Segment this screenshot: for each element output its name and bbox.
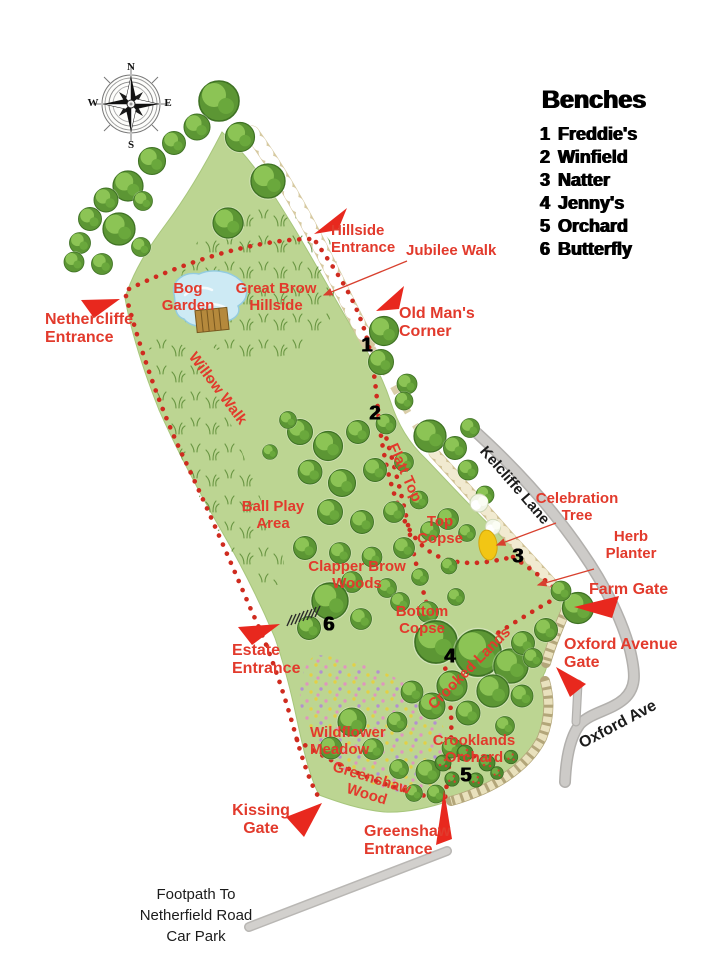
compass-east-label: E: [164, 97, 171, 109]
label-bog-garden: Bog Garden: [162, 281, 215, 315]
park-map: N E S W Hillside Entrance Jubilee Walk B…: [0, 0, 720, 960]
label-bottom-copse: Bottom Copse: [396, 604, 449, 638]
bench-marker-2: 2: [369, 403, 380, 426]
benches-legend: Benches 1Freddie's 2Winfield 3Natter 4Je…: [540, 86, 646, 262]
label-oxford-avenue-gate: Oxford Avenue Gate: [564, 636, 678, 672]
compass-rose: N E S W: [88, 61, 172, 151]
bench-marker-5: 5: [460, 765, 471, 788]
label-old-mans-corner: Old Man's Corner: [399, 305, 475, 341]
legend-item-butterfly: 6Butterfly: [540, 239, 646, 262]
legend-item-winfield: 2Winfield: [540, 147, 646, 170]
kissing-gate-flag: [286, 803, 322, 837]
label-hillside-entrance: Hillside Entrance: [331, 223, 395, 257]
label-footpath-note: Footpath To Netherfield Road Car Park: [140, 884, 253, 947]
label-greenshaw-entrance: Greenshaw Entrance: [364, 823, 450, 859]
label-farm-gate: Farm Gate: [589, 581, 668, 599]
label-wildflower-meadow: Wildflower Meadow: [310, 725, 386, 759]
footpath-road: [249, 851, 447, 927]
bench-marker-1: 1: [361, 335, 372, 358]
label-herb-planter: Herb Planter: [606, 529, 657, 563]
label-crooklands-orchard: Crooklands Orchard: [433, 733, 516, 767]
label-jubilee-walk: Jubilee Walk: [406, 243, 496, 260]
label-top-copse: Top Copse: [417, 514, 463, 548]
bench-marker-6: 6: [323, 614, 334, 637]
bench-marker-3: 3: [512, 546, 523, 569]
label-estate-entrance: Estate Entrance: [232, 642, 300, 678]
label-nethercliffe-entrance: Nethercliffe Entrance: [45, 311, 133, 347]
label-great-brow-hillside: Great Brow Hillside: [236, 281, 317, 315]
label-kissing-gate: Kissing Gate: [232, 802, 290, 838]
label-ball-play-area: Ball Play Area: [242, 499, 305, 533]
compass-west-label: W: [88, 97, 99, 109]
compass-north-label: N: [127, 61, 135, 73]
label-clapper-brow-woods: Clapper Brow Woods: [308, 559, 406, 593]
label-celebration-tree: Celebration Tree: [536, 491, 619, 525]
legend-item-orchard: 5Orchard: [540, 216, 646, 239]
bench-marker-4: 4: [444, 646, 455, 669]
compass-south-label: S: [128, 139, 134, 151]
legend-item-jennys: 4Jenny's: [540, 193, 646, 216]
legend-item-natter: 3Natter: [540, 170, 646, 193]
legend-item-freddies: 1Freddie's: [540, 124, 646, 147]
legend-title: Benches: [542, 86, 646, 115]
